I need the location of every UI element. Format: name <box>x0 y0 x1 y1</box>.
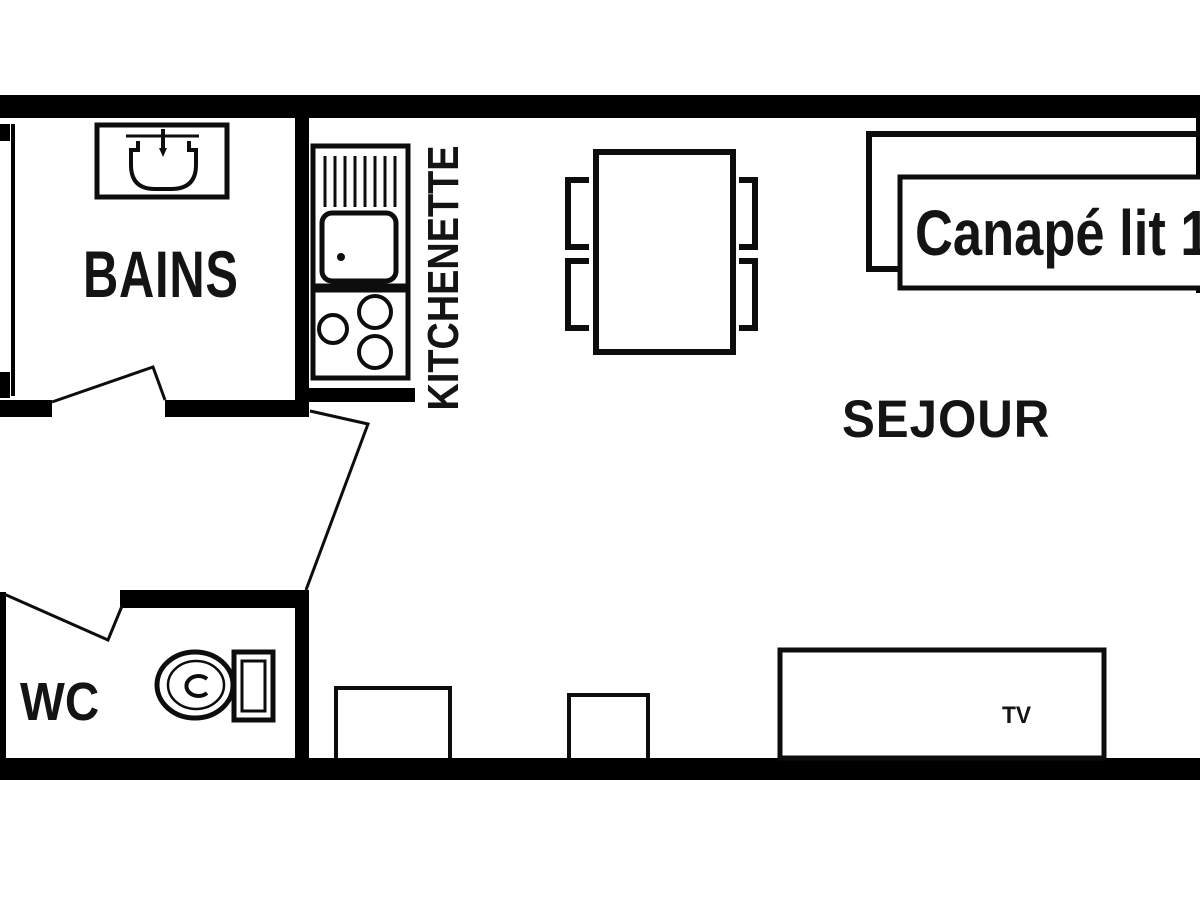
hall-door-swing-icon <box>306 411 368 590</box>
drainer-icon <box>325 156 395 207</box>
sofa-bed-label: Canapé lit 1 <box>915 201 1200 265</box>
burner-bottom <box>359 336 391 368</box>
bathroom-bottom-wall-left <box>0 400 52 417</box>
sink-drain <box>337 253 345 261</box>
burner-small <box>319 315 347 343</box>
toilet-bowl-rim <box>168 661 224 709</box>
kitchenette-base-wall <box>309 388 415 402</box>
left-wall-tab-top <box>0 124 10 141</box>
washbasin-icon <box>97 125 227 197</box>
bathroom-bottom-wall-right <box>165 400 309 417</box>
faucet-tip <box>159 148 167 157</box>
chair-left-top-icon <box>568 180 589 247</box>
bathroom-right-wall <box>295 116 309 417</box>
living-room-label: SEJOUR <box>842 393 1050 446</box>
wc-door-swing-icon <box>4 594 122 640</box>
dining-table-icon <box>596 152 733 352</box>
wc-right-wall <box>295 590 309 780</box>
floorplan-canvas: BAINS KITCHENETTE SEJOUR WC Canapé lit 1… <box>0 0 1200 900</box>
chair-left-bottom-icon <box>568 261 589 328</box>
chair-right-bottom-icon <box>739 261 755 328</box>
floorplan-drawing <box>0 0 1200 900</box>
chair-right-top-icon <box>739 180 755 247</box>
wc-label: WC <box>20 675 99 729</box>
toilet-seat-mark <box>186 676 207 696</box>
burner-top <box>359 296 391 328</box>
toilet-icon <box>157 652 273 720</box>
bathroom-label: BAINS <box>83 241 239 307</box>
storage-unit-icon <box>336 688 450 758</box>
bathroom-door-swing-icon <box>52 367 165 402</box>
tv-cabinet-icon <box>780 650 1104 758</box>
bottom-furniture <box>336 650 1104 758</box>
kitchen-sink-icon <box>322 213 396 281</box>
top-wall <box>0 95 1200 118</box>
left-wall-tab-bottom <box>0 372 10 398</box>
tv-label: TV <box>1002 704 1031 728</box>
dining-set <box>568 152 755 352</box>
bottom-wall <box>0 758 1200 780</box>
toilet-tank-inner <box>242 661 265 711</box>
kitchenette-label: KITCHENETTE <box>422 146 466 411</box>
wc-top-wall <box>120 590 309 608</box>
kitchenette-unit <box>313 146 408 378</box>
wc-left-wall <box>0 592 6 780</box>
storage-unit-small-icon <box>569 695 648 758</box>
left-opening-line <box>11 124 15 396</box>
